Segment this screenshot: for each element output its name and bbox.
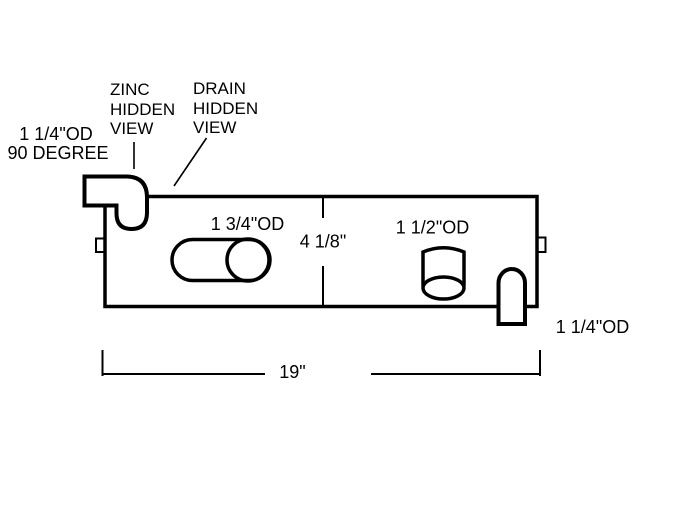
tank-drawing: 1 1/4"OD 90 DEGREE ZINC HIDDEN VIEW DRAI… (0, 0, 690, 512)
height-dim-label: 4 1/8" (300, 232, 346, 252)
zinc-cylinder-bottom-ellipse (423, 277, 464, 299)
drain-label-line3: VIEW (193, 118, 236, 137)
cylinder-od-label: 1 1/2"OD (396, 218, 469, 238)
outlet-od-label: 1 1/4"OD (556, 317, 629, 337)
zinc-label-line3: VIEW (110, 119, 153, 138)
drain-leader-line (174, 138, 207, 186)
tank-body-outline (105, 197, 537, 307)
elbow-angle-label: 90 DEGREE (7, 143, 108, 163)
technical-drawing-canvas: 1 1/4"OD 90 DEGREE ZINC HIDDEN VIEW DRAI… (0, 0, 690, 512)
elbow-fitting-outline (85, 177, 148, 230)
drain-label-line2: HIDDEN (193, 99, 258, 118)
drain-label-line1: DRAIN (193, 79, 246, 98)
zinc-label-line2: HIDDEN (110, 100, 175, 119)
drain-tube-circle (227, 239, 269, 281)
zinc-label-line1: ZINC (110, 80, 150, 99)
drain-slot-outline (172, 240, 270, 281)
elbow-size-label: 1 1/4"OD (19, 124, 92, 144)
length-dim-label: 19" (279, 362, 305, 382)
outlet-tube-outline (499, 269, 526, 324)
slot-od-label: 1 3/4"OD (211, 214, 284, 234)
